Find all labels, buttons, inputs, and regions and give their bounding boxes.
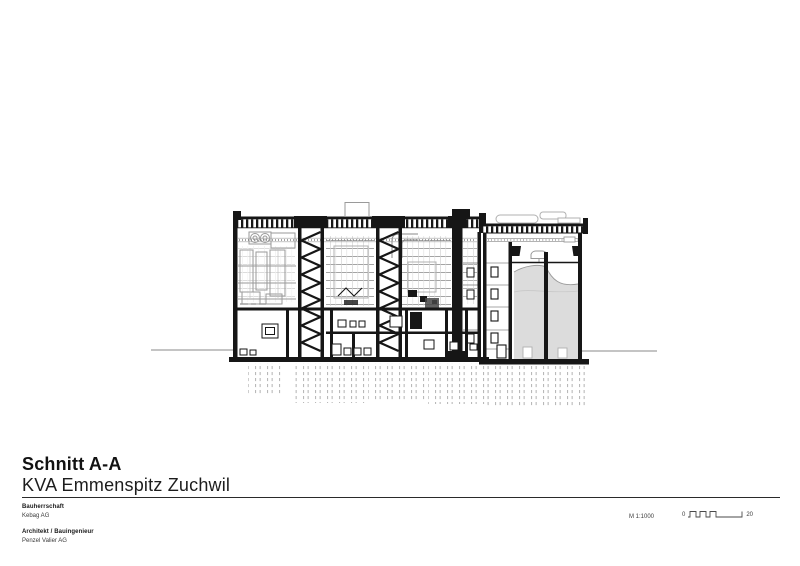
divider-rule xyxy=(22,497,780,498)
service-tower xyxy=(483,233,512,360)
bunker-centre-wall xyxy=(544,252,548,359)
client-label: Bauherrschaft xyxy=(22,504,64,510)
main-building xyxy=(229,203,489,363)
drawing-sheet: Schnitt A-A KVA Emmenspitz Zuchwil Bauhe… xyxy=(0,0,800,566)
machine-base xyxy=(344,300,358,305)
base-slab xyxy=(229,357,489,362)
main-roof xyxy=(233,203,486,234)
scale-bar: 0 20 xyxy=(682,508,753,519)
stack-column xyxy=(452,212,463,358)
scale-bar-start: 0 xyxy=(682,512,685,519)
architect-label: Architekt / Bauingenieur xyxy=(22,529,94,535)
page-title: Schnitt A-A xyxy=(22,455,230,474)
bunker-base-slab xyxy=(479,359,589,365)
title-block: Schnitt A-A KVA Emmenspitz Zuchwil xyxy=(22,455,230,495)
scale-text: M 1:1000 xyxy=(629,514,654,520)
page-subtitle: KVA Emmenspitz Zuchwil xyxy=(22,476,230,495)
client-info: Bauherrschaft Kebag AG xyxy=(22,504,64,519)
truss-column-2 xyxy=(376,228,402,357)
scale-bar-end: 20 xyxy=(746,512,753,519)
scale-bar-graphic xyxy=(687,508,745,519)
pile-foundations xyxy=(248,363,586,406)
architect-value: Penzel Valier AG xyxy=(22,538,94,544)
client-value: Kebag AG xyxy=(22,513,64,519)
bunker-roof xyxy=(483,212,588,234)
bunker-building xyxy=(479,212,589,365)
architect-info: Architekt / Bauingenieur Penzel Valier A… xyxy=(22,529,94,544)
bunker-rail-strip xyxy=(487,237,580,242)
hopper-block xyxy=(425,298,439,309)
truss-column-1 xyxy=(298,228,324,357)
